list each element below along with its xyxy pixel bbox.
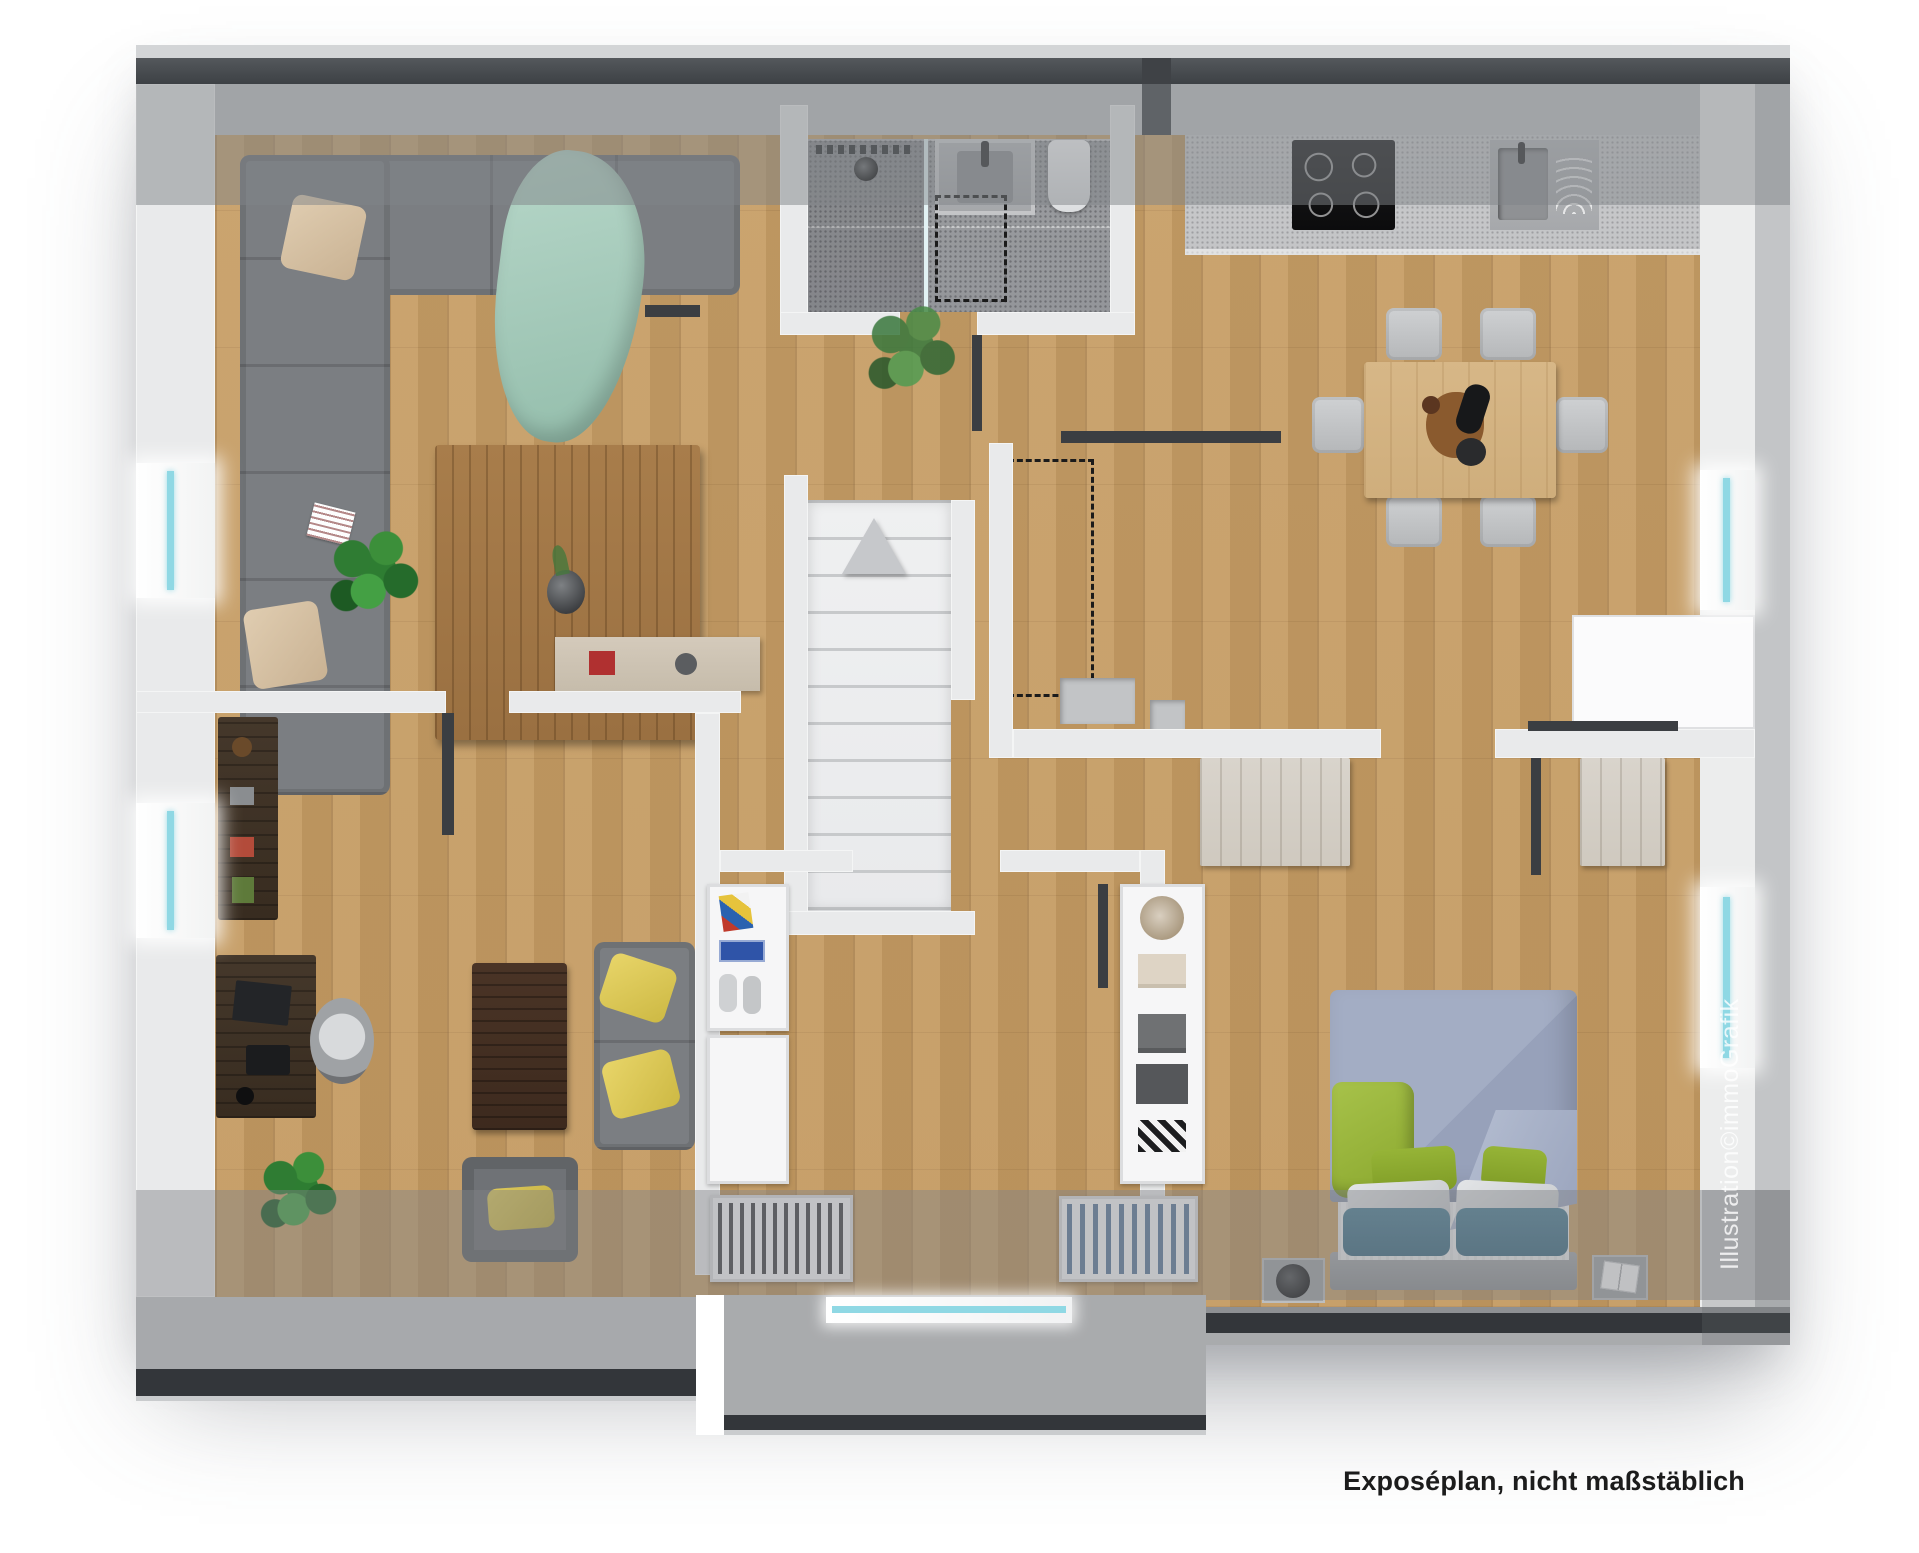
sneaker [719,974,737,1012]
bedroom-sideboard [1200,758,1350,866]
roof-slope-overlay-bottom [136,1190,1790,1300]
window-glass [167,471,174,590]
white-cabinet [1572,615,1755,729]
lowboard [555,637,760,691]
hanging-clothes-rail-dark [707,1035,789,1184]
bedroom-sideboard [1580,758,1665,866]
living-office-wall [136,691,446,713]
shoe-shelf [707,884,789,1031]
office-door-leaf [442,713,454,835]
vase-decor [675,653,697,675]
beige-cushion [279,193,368,282]
dining-chair [1312,397,1364,453]
folded-clothes-gray [1138,1014,1186,1048]
bottom-shell-left [136,1297,696,1401]
grass-plant [860,296,962,406]
window-left-2 [136,803,215,938]
right-outer-wall [1755,84,1790,1307]
basket [1140,896,1184,940]
wall-niche [1060,678,1135,724]
stairwell-bottom-wall [784,911,975,935]
roof-edge-light [136,45,1790,58]
bedroom-wall-dark-segment [1528,721,1678,731]
bottom-shell-gap [696,1295,724,1435]
roof-void-dashed-marking [1008,459,1094,697]
window-glass [1723,478,1730,602]
window-bottom [826,1297,1072,1323]
living-office-wall [509,691,741,713]
office-wall-shelf [218,717,278,920]
laptop-icon [232,980,292,1026]
living-room-plant [321,522,426,627]
living-door-dark-segment [645,305,700,317]
dining-chair [1556,397,1608,453]
bedroom-top-wall [1495,729,1755,758]
dining-table [1364,362,1556,498]
caption-text: Exposéplan, nicht maßstäblich [1343,1466,1745,1497]
office-desk [216,955,316,1118]
bedroom-door-leaf [1531,758,1541,875]
watermark-text: Illustration©immoGrafik [1712,1040,1748,1270]
bedroom-top-wall [1013,729,1381,758]
dressing-top-wall [720,850,853,872]
bathroom-bottom-wall-right [977,312,1135,335]
stairwell-right-wall [951,500,975,700]
desk-lamp-icon [236,1087,254,1105]
folded-clothes-beige [1138,954,1186,984]
floor-plan [136,45,1790,1345]
folded-clothes-shelf [1120,884,1205,1184]
cup-icon [1422,396,1440,414]
red-box-decor [589,651,615,675]
shelf-decor [232,737,252,757]
rug-table [472,963,567,1130]
dining-chair [1480,308,1536,360]
art-print-decor [719,892,754,932]
shower-enclosure-dashed-marking [935,195,1007,302]
blue-shoe-box [719,940,765,962]
bathroom-door-leaf [972,335,982,431]
stair-direction-pyramid-icon [842,518,906,574]
dining-chair [1386,308,1442,360]
hall-bedroom-wall [989,443,1013,758]
dining-chair [1480,495,1536,547]
shelf-decor [230,787,254,805]
zigzag-clothes [1138,1120,1186,1152]
vase-plant-sprig [550,544,570,576]
hall-top-wall-dark-segment [1061,431,1281,443]
vase-icon [547,570,585,614]
folded-clothes-dark [1136,1064,1188,1104]
dining-chair [1386,495,1442,547]
shelf-decor [230,837,254,857]
dressing-top-wall [1000,850,1140,872]
bottle-icon [1453,381,1493,437]
bowl-icon [1456,438,1486,466]
window-left-1 [136,463,215,598]
window-glass [832,1306,1066,1313]
roof-slope-overlay-top [136,84,1790,205]
dressing-door-leaf [1098,884,1108,988]
shelf-decor [232,877,254,903]
window-glass [167,811,174,930]
beige-cushion [242,600,329,691]
office-chair [310,998,374,1084]
roof-edge-dark [136,58,1790,84]
sneaker [743,976,761,1014]
keyboard-icon [246,1045,290,1075]
window-right-1 [1700,470,1755,610]
